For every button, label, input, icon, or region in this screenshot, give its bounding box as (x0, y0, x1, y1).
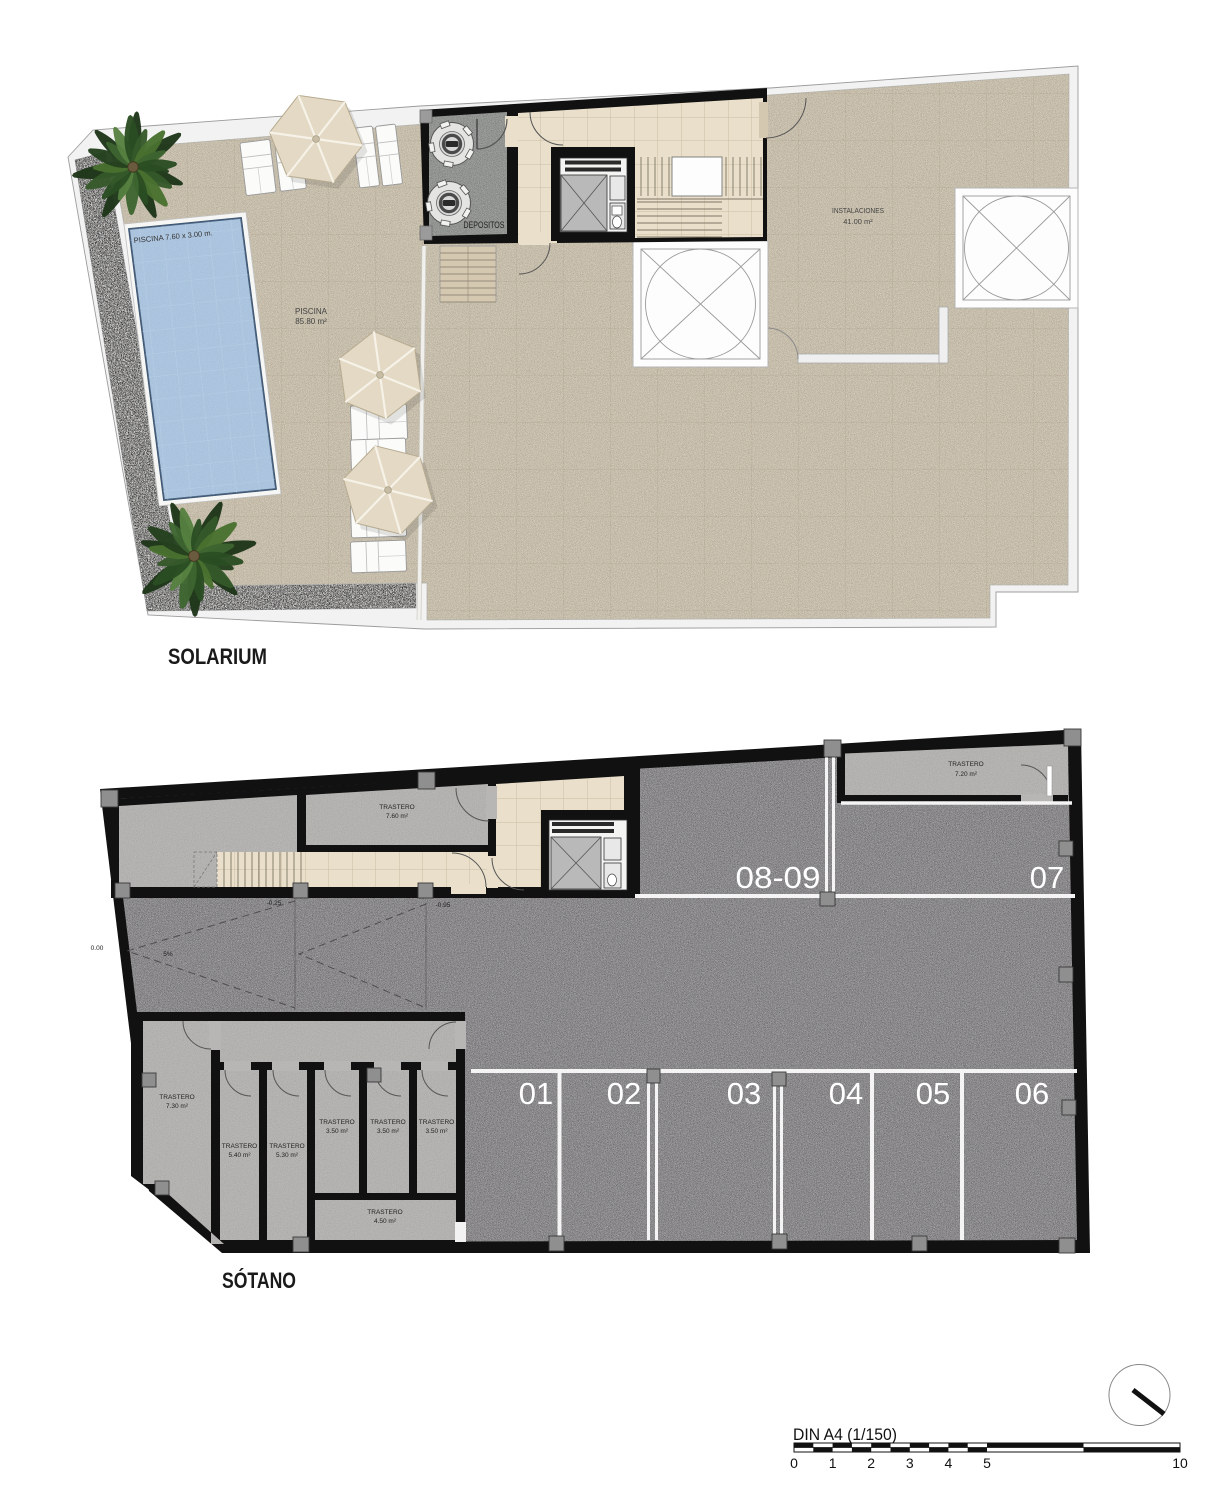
svg-text:TRASTERO: TRASTERO (419, 1119, 454, 1126)
svg-text:7.20 m²: 7.20 m² (955, 771, 978, 778)
svg-text:3: 3 (906, 1455, 914, 1471)
svg-text:TRASTERO: TRASTERO (159, 1094, 194, 1101)
svg-text:06: 06 (1015, 1076, 1049, 1111)
svg-text:03: 03 (727, 1076, 761, 1111)
svg-text:02: 02 (607, 1076, 641, 1111)
svg-text:TRASTERO: TRASTERO (269, 1143, 304, 1150)
svg-text:7.60 m²: 7.60 m² (386, 813, 409, 820)
svg-text:-0.95: -0.95 (436, 902, 451, 909)
svg-text:SOLARIUM: SOLARIUM (168, 644, 267, 669)
svg-text:4.50 m²: 4.50 m² (374, 1218, 397, 1225)
svg-text:41.00 m²: 41.00 m² (843, 217, 873, 226)
svg-text:DEPOSITOS: DEPOSITOS (464, 220, 505, 230)
svg-text:10: 10 (1172, 1455, 1188, 1471)
svg-text:TRASTERO: TRASTERO (379, 804, 414, 811)
svg-text:7.30 m²: 7.30 m² (166, 1103, 189, 1110)
svg-text:0.00: 0.00 (91, 945, 104, 952)
svg-text:TRASTERO: TRASTERO (222, 1143, 257, 1150)
svg-text:1: 1 (829, 1455, 837, 1471)
svg-text:01: 01 (519, 1076, 553, 1111)
svg-text:5.30 m²: 5.30 m² (276, 1152, 299, 1159)
svg-text:0: 0 (790, 1455, 798, 1471)
svg-text:5: 5 (983, 1455, 991, 1471)
svg-text:3.50 m²: 3.50 m² (425, 1128, 448, 1135)
svg-text:5%: 5% (163, 951, 173, 958)
svg-text:3.50 m²: 3.50 m² (326, 1128, 349, 1135)
svg-text:PISCINA: PISCINA (295, 307, 328, 316)
svg-text:5.40 m²: 5.40 m² (228, 1152, 251, 1159)
svg-text:-0.25: -0.25 (267, 900, 282, 907)
svg-text:INSTALACIONES: INSTALACIONES (832, 206, 884, 215)
svg-text:TRASTERO: TRASTERO (367, 1209, 402, 1216)
svg-text:04: 04 (829, 1076, 863, 1111)
svg-text:SÓTANO: SÓTANO (222, 1268, 296, 1293)
svg-text:07: 07 (1030, 860, 1064, 895)
svg-text:3.50 m²: 3.50 m² (377, 1128, 400, 1135)
svg-text:TRASTERO: TRASTERO (370, 1119, 405, 1126)
svg-text:TRASTERO: TRASTERO (948, 761, 983, 768)
svg-text:08-09: 08-09 (736, 860, 821, 895)
svg-text:2: 2 (867, 1455, 875, 1471)
svg-text:05: 05 (916, 1076, 950, 1111)
svg-text:4: 4 (945, 1455, 953, 1471)
svg-text:DIN A4 (1/150): DIN A4 (1/150) (793, 1425, 897, 1444)
svg-text:85.80 m²: 85.80 m² (295, 317, 327, 326)
svg-text:TRASTERO: TRASTERO (319, 1119, 354, 1126)
